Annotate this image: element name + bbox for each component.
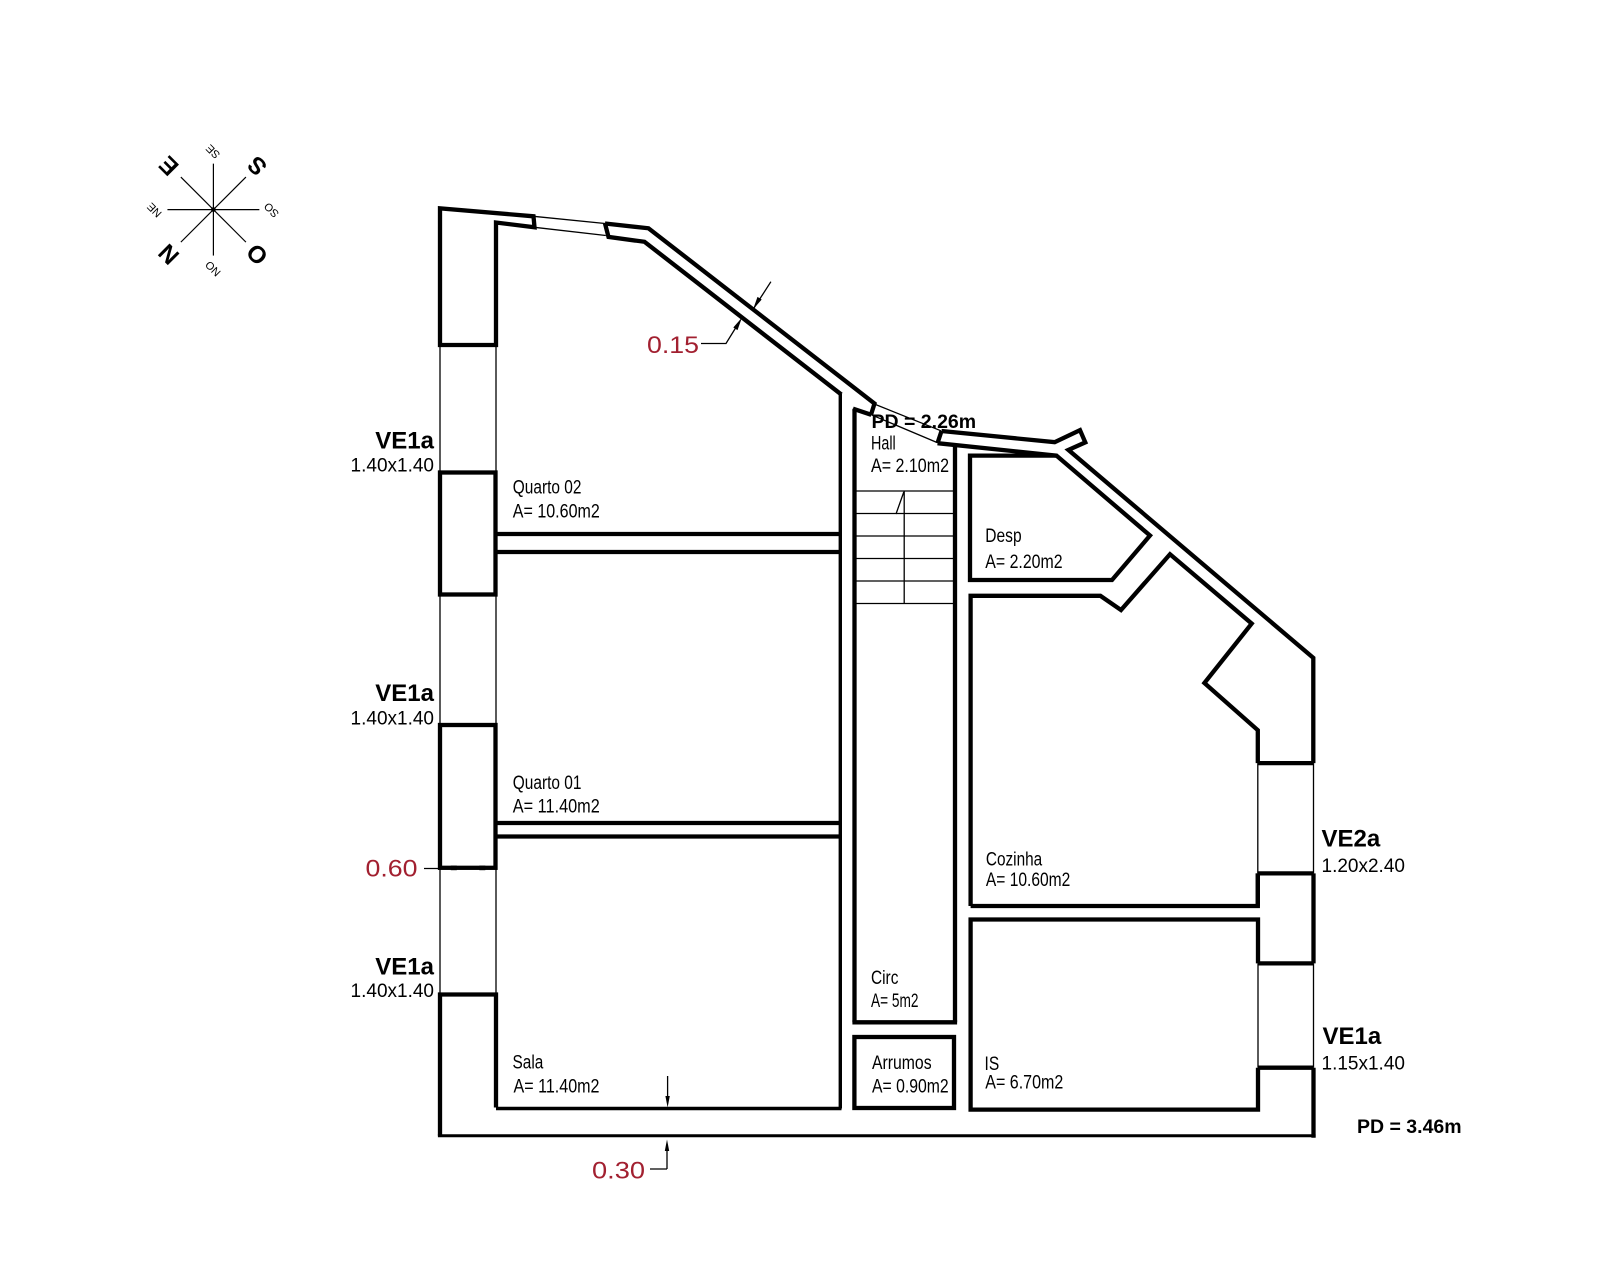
svg-text:A= 2.20m2: A= 2.20m2 [985, 551, 1062, 573]
svg-text:A= 2.10m2: A= 2.10m2 [871, 455, 949, 477]
svg-text:VE1a: VE1a [375, 954, 434, 981]
svg-text:1.15x1.40: 1.15x1.40 [1322, 1054, 1405, 1075]
svg-text:A= 11.40m2: A= 11.40m2 [513, 796, 600, 818]
svg-text:PD = 3.46m: PD = 3.46m [1357, 1116, 1462, 1138]
svg-text:1.40x1.40: 1.40x1.40 [351, 456, 434, 477]
svg-text:A= 5m2: A= 5m2 [871, 990, 919, 1012]
svg-text:0.60: 0.60 [366, 856, 418, 883]
svg-text:VE1a: VE1a [375, 428, 434, 455]
svg-text:Cozinha: Cozinha [986, 849, 1042, 871]
svg-text:PD = 2.26m: PD = 2.26m [872, 411, 977, 433]
svg-text:A= 10.60m2: A= 10.60m2 [513, 501, 600, 523]
svg-text:A= 11.40m2: A= 11.40m2 [514, 1076, 600, 1098]
svg-text:Quarto 01: Quarto 01 [513, 772, 582, 794]
svg-text:VE1a: VE1a [375, 680, 434, 707]
svg-text:Hall: Hall [871, 433, 896, 455]
svg-text:0.30: 0.30 [592, 1158, 645, 1185]
svg-text:1.20x2.40: 1.20x2.40 [1322, 856, 1405, 877]
svg-text:Circ: Circ [871, 967, 899, 989]
svg-text:A= 0.90m2: A= 0.90m2 [872, 1076, 949, 1098]
svg-text:VE2a: VE2a [1322, 826, 1381, 853]
svg-text:A= 10.60m2: A= 10.60m2 [986, 869, 1070, 891]
svg-text:Sala: Sala [513, 1052, 544, 1074]
svg-text:VE1a: VE1a [1323, 1023, 1382, 1050]
svg-text:Desp: Desp [985, 525, 1021, 547]
svg-text:A= 6.70m2: A= 6.70m2 [985, 1072, 1063, 1094]
svg-text:1.40x1.40: 1.40x1.40 [351, 709, 434, 730]
svg-text:1.40x1.40: 1.40x1.40 [351, 981, 434, 1002]
svg-text:Arrumos: Arrumos [872, 1052, 932, 1074]
svg-text:Quarto 02: Quarto 02 [513, 477, 582, 499]
svg-text:0.15: 0.15 [647, 332, 699, 359]
